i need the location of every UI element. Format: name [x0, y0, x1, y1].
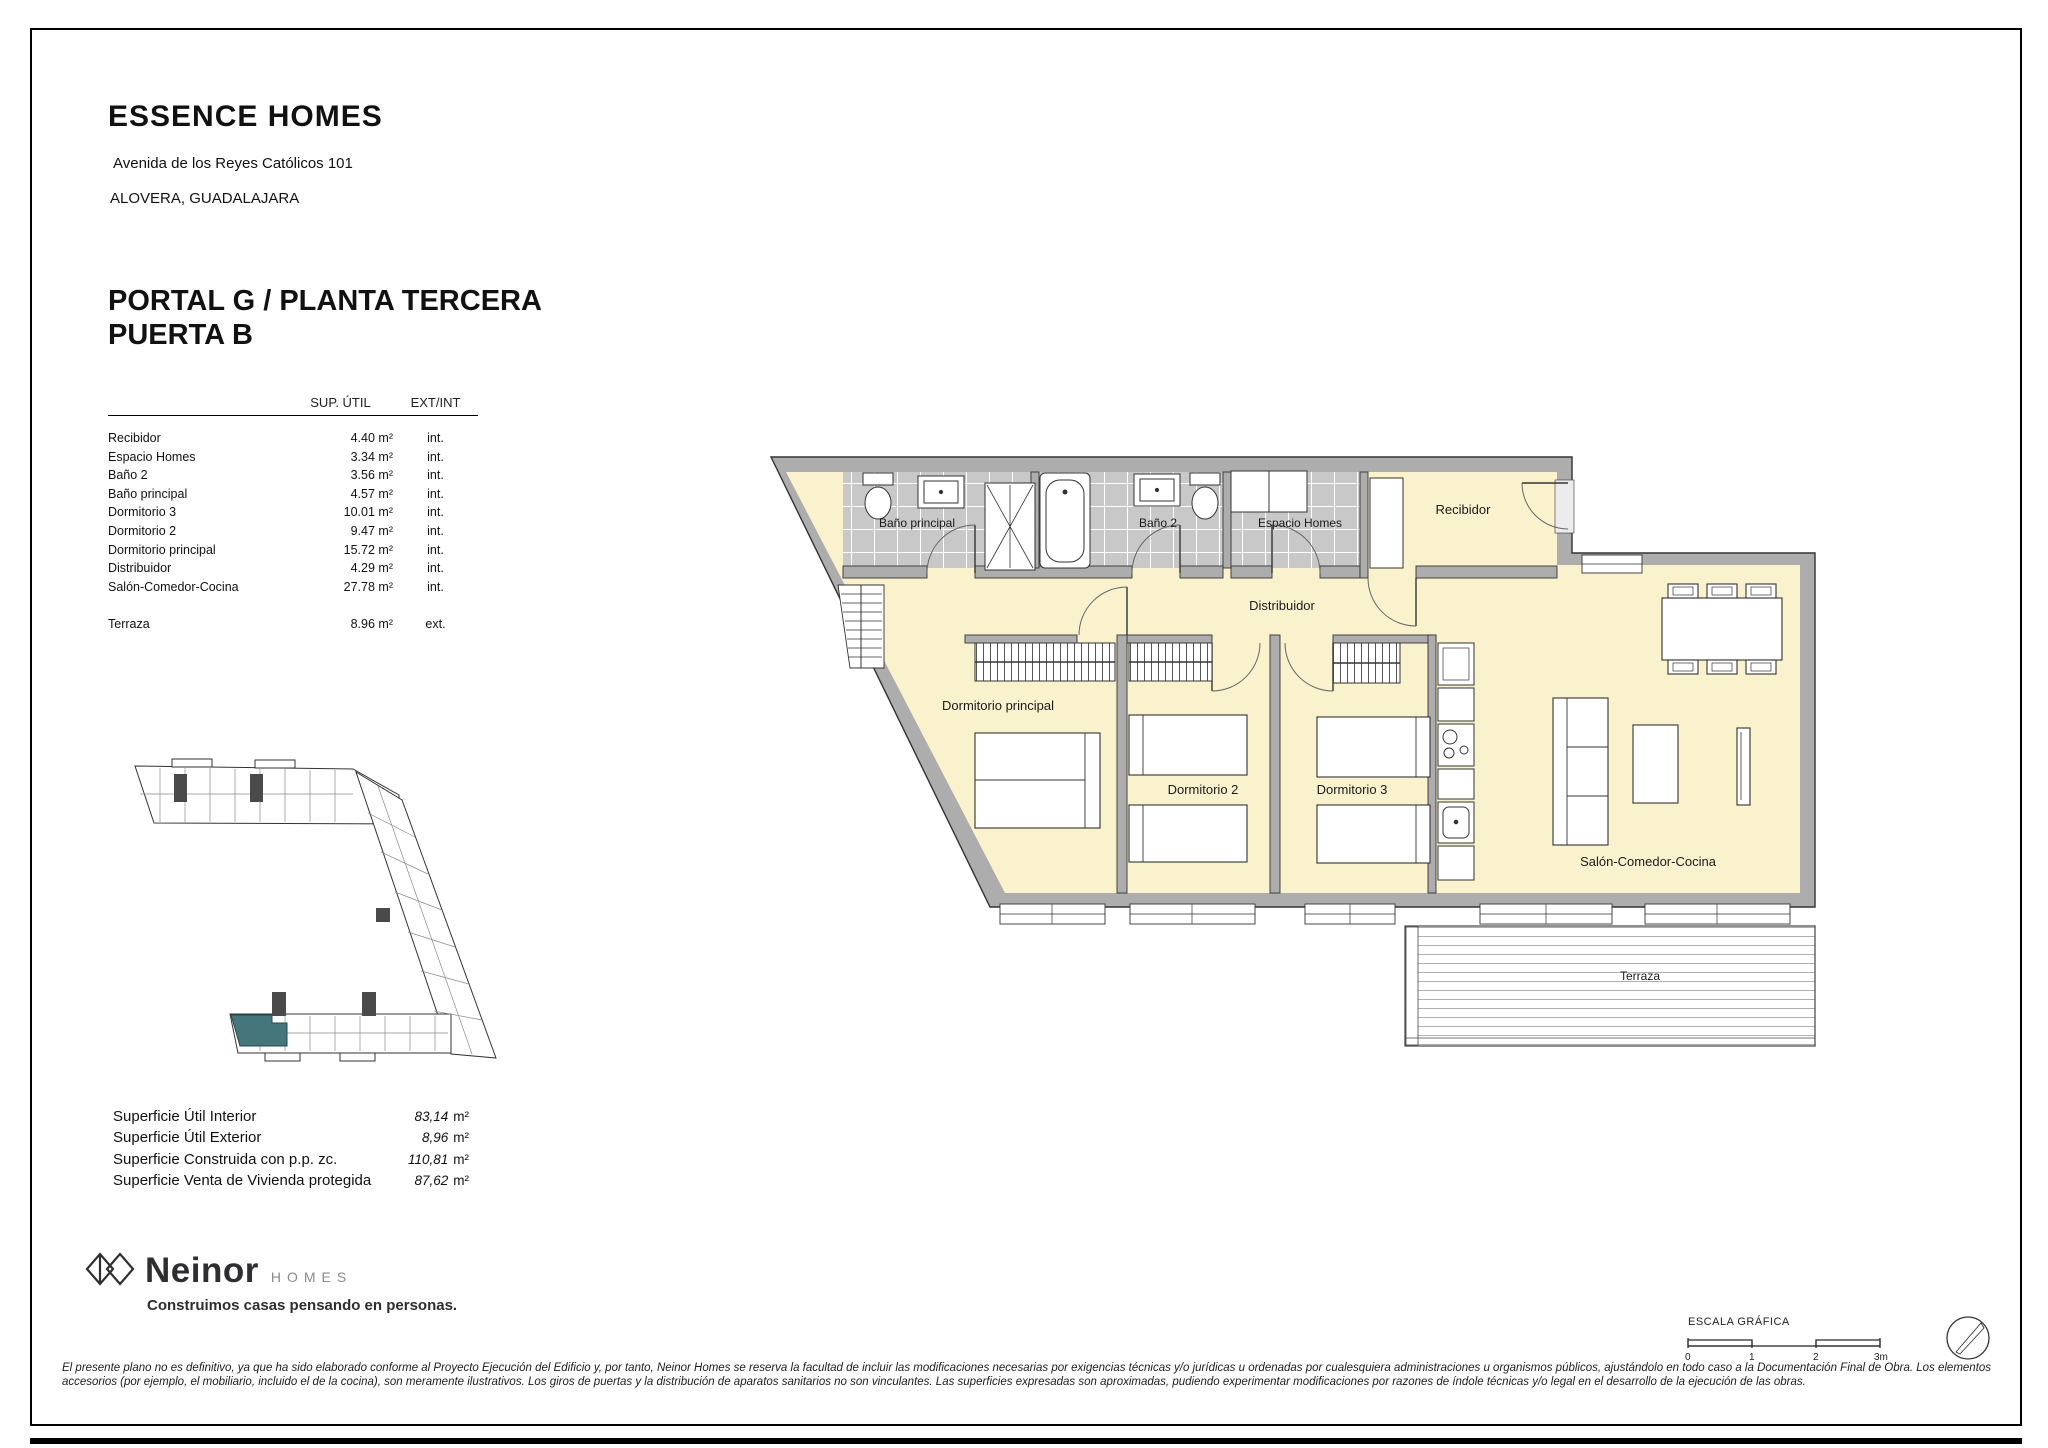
summary-unit: m² [448, 1170, 483, 1191]
room-name: Dormitorio 3 [108, 503, 288, 522]
building-key-plan [100, 740, 520, 1080]
table-row: Baño 23.56 m²int. [108, 466, 478, 485]
address-line: Avenida de los Reyes Católicos 101 [113, 155, 353, 172]
table-row: Espacio Homes3.34 m²int. [108, 448, 478, 467]
table-row: Baño principal4.57 m²int. [108, 485, 478, 504]
room-name: Distribuidor [108, 559, 288, 578]
room-area: 4.57 m² [288, 485, 393, 504]
summary-row: Superficie Venta de Vivienda protegida87… [113, 1170, 483, 1191]
surface-summary: Superficie Útil Interior83,14m² Superfic… [113, 1106, 483, 1191]
city-line: ALOVERA, GUADALAJARA [110, 190, 299, 207]
label-recibidor: Recibidor [1436, 502, 1492, 517]
label-espacio-homes: Espacio Homes [1258, 516, 1342, 530]
neinor-homes-sub: HOMES [271, 1269, 352, 1285]
summary-label: Superficie Construida con p.p. zc. [113, 1149, 393, 1170]
scale-tick-0: 0 [1685, 1352, 1691, 1363]
room-type: int. [393, 578, 478, 597]
areas-table: SUP. ÚTIL EXT/INT Recibidor4.40 m²int. E… [108, 395, 478, 634]
summary-unit: m² [448, 1149, 483, 1170]
logo-tagline: Construimos casas pensando en personas. [147, 1297, 457, 1314]
label-dormitorio-3: Dormitorio 3 [1317, 782, 1388, 797]
room-type: int. [393, 522, 478, 541]
summary-value: 83,14 [393, 1106, 449, 1127]
neinor-logo-icon [85, 1250, 135, 1288]
table-row: Dormitorio 310.01 m²int. [108, 503, 478, 522]
room-type: int. [393, 429, 478, 448]
room-name: Baño principal [108, 485, 288, 504]
label-terraza: Terraza [1620, 969, 1660, 983]
label-bano-principal: Baño principal [879, 516, 955, 530]
room-area: 27.78 m² [288, 578, 393, 597]
room-type: int. [393, 466, 478, 485]
room-type: ext. [393, 615, 478, 634]
col-sup-util: SUP. ÚTIL [288, 395, 393, 410]
table-row: Terraza8.96 m²ext. [108, 615, 478, 634]
north-compass-icon [1940, 1310, 2000, 1370]
summary-row: Superficie Útil Interior83,14m² [113, 1106, 483, 1127]
scale-tick-3: 3m [1874, 1352, 1888, 1363]
room-type: int. [393, 503, 478, 522]
room-name: Recibidor [108, 429, 288, 448]
room-area: 8.96 m² [288, 615, 393, 634]
label-distribuidor: Distribuidor [1249, 598, 1315, 613]
label-bano-2: Baño 2 [1139, 516, 1177, 530]
summary-label: Superficie Venta de Vivienda protegida [113, 1170, 393, 1191]
brand-title: ESSENCE HOMES [108, 100, 383, 134]
stair-niche [838, 585, 884, 668]
scale-tick-2: 2 [1813, 1352, 1819, 1363]
table-row: Dormitorio 29.47 m²int. [108, 522, 478, 541]
wardrobes [975, 643, 1400, 683]
room-type: int. [393, 559, 478, 578]
summary-label: Superficie Útil Exterior [113, 1127, 393, 1148]
areas-table-header: SUP. ÚTIL EXT/INT [108, 395, 478, 416]
room-name: Espacio Homes [108, 448, 288, 467]
sheet-title-line2: PUERTA B [108, 318, 542, 352]
room-type: int. [393, 485, 478, 504]
sheet-title-line1: PORTAL G / PLANTA TERCERA [108, 284, 542, 318]
label-dormitorio-principal: Dormitorio principal [942, 698, 1054, 713]
room-area: 10.01 m² [288, 503, 393, 522]
room-type: int. [393, 448, 478, 467]
summary-unit: m² [448, 1127, 483, 1148]
summary-row: Superficie Útil Exterior8,96m² [113, 1127, 483, 1148]
room-name: Dormitorio 2 [108, 522, 288, 541]
room-name: Salón-Comedor-Cocina [108, 578, 288, 597]
room-area: 9.47 m² [288, 522, 393, 541]
room-area: 4.40 m² [288, 429, 393, 448]
label-dormitorio-2: Dormitorio 2 [1168, 782, 1239, 797]
scale-label: ESCALA GRÁFICA [1688, 1316, 1790, 1328]
terrace [1405, 926, 1815, 1046]
floor-plan: Baño principal Baño 2 Espacio Homes Reci… [580, 330, 1940, 1170]
room-area: 15.72 m² [288, 541, 393, 560]
summary-value: 87,62 [393, 1170, 449, 1191]
room-name: Baño 2 [108, 466, 288, 485]
room-area: 3.56 m² [288, 466, 393, 485]
label-salon: Salón-Comedor-Cocina [1580, 854, 1717, 869]
page-bottom-rule [30, 1438, 2022, 1444]
scale-tick-1: 1 [1749, 1352, 1755, 1363]
table-row: Dormitorio principal15.72 m²int. [108, 541, 478, 560]
room-area: 3.34 m² [288, 448, 393, 467]
neinor-logo: Neinor HOMES Construimos casas pensando … [85, 1250, 457, 1314]
room-area: 4.29 m² [288, 559, 393, 578]
summary-value: 110,81 [393, 1149, 449, 1170]
legal-disclaimer: El presente plano no es definitivo, ya q… [62, 1362, 2012, 1389]
room-name: Terraza [108, 615, 288, 634]
table-row: Salón-Comedor-Cocina27.78 m²int. [108, 578, 478, 597]
col-ext-int: EXT/INT [393, 395, 478, 410]
table-row: Recibidor4.40 m²int. [108, 429, 478, 448]
summary-unit: m² [448, 1106, 483, 1127]
summary-value: 8,96 [393, 1127, 449, 1148]
scale-bar: 0 1 2 3m [1684, 1334, 1894, 1366]
room-type: int. [393, 541, 478, 560]
summary-row: Superficie Construida con p.p. zc.110,81… [113, 1149, 483, 1170]
sheet-title: PORTAL G / PLANTA TERCERA PUERTA B [108, 284, 542, 352]
room-name: Dormitorio principal [108, 541, 288, 560]
neinor-wordmark: Neinor [145, 1254, 259, 1288]
summary-label: Superficie Útil Interior [113, 1106, 393, 1127]
table-row: Distribuidor4.29 m²int. [108, 559, 478, 578]
